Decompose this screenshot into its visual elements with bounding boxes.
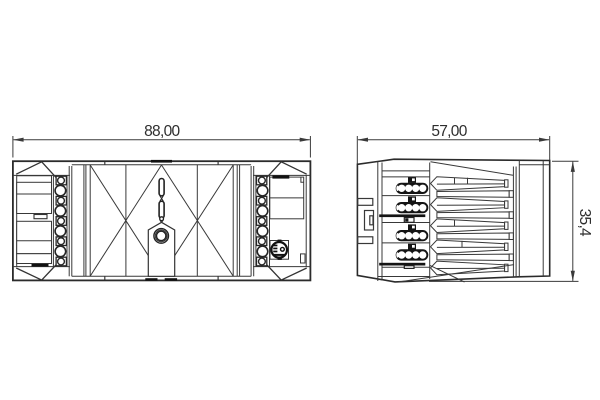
svg-text:35,4: 35,4 <box>576 209 593 237</box>
svg-text:57,00: 57,00 <box>431 123 467 140</box>
svg-text:88,00: 88,00 <box>144 123 180 140</box>
